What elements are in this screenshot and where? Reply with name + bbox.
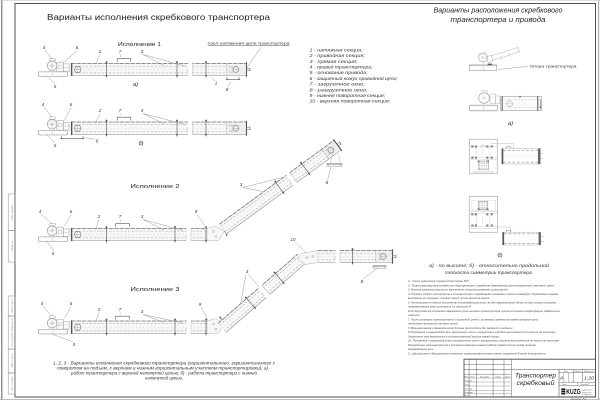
svg-text:6 - защитный кожух приводной: 6 - защитный кожух приводной цепи; (310, 76, 399, 81)
svg-text:KUZG: KUZG (566, 389, 581, 396)
svg-text:Подп.: Подп. (496, 376, 502, 378)
svg-text:3 - прямая секция;: 3 - прямая секция; (310, 59, 359, 64)
svg-text:5 - основание привода;: 5 - основание привода; (310, 70, 369, 75)
svg-text:8: 8 (96, 139, 99, 144)
svg-text:7: 7 (119, 214, 122, 219)
svg-text:10: 10 (291, 237, 296, 242)
svg-text:Перв. примен.: Перв. примен. (11, 204, 14, 220)
svg-text:Исполнение 2: Исполнение 2 (131, 184, 180, 190)
svg-text:Лит.: Лит. (564, 371, 568, 373)
svg-text:Исполнение 3: Исполнение 3 (131, 287, 180, 293)
svg-text:Подп. и дата: Подп. и дата (11, 353, 14, 368)
svg-text:плоскости симметрии транспорте: плоскости симметрии транспортера. (445, 270, 533, 275)
svg-text:Масштаб: Масштаб (584, 371, 594, 373)
svg-text:Варианты расположения скребков: Варианты расположения скребкового (434, 6, 563, 15)
svg-text:Н.контр.: Н.контр. (465, 392, 474, 394)
svg-text:8 - разгрузочное окно;: 8 - разгрузочное окно; (310, 87, 369, 92)
svg-text:Инв. № дубл. Взам.инв.№: Инв. № дубл. Взам.инв.№ (11, 318, 14, 347)
svg-text:8: 8 (226, 87, 229, 92)
svg-text:1:20: 1:20 (584, 376, 595, 381)
svg-text:4: 4 (42, 102, 45, 107)
svg-text:Лист: Лист (470, 376, 475, 378)
svg-text:9 - нижняя поворотная секция;: 9 - нижняя поворотная секция; (310, 93, 387, 98)
svg-text:И: И (560, 376, 563, 381)
svg-text:7: 7 (119, 49, 122, 54)
svg-text:№ докум.: № докум. (480, 375, 490, 378)
svg-text:3: 3 (246, 269, 249, 274)
svg-text:Пров.: Пров. (465, 384, 471, 386)
svg-text:Узел натяжения цепи транспорте: Узел натяжения цепи транспортера (208, 41, 291, 46)
svg-text:8: 8 (326, 180, 329, 185)
svg-text:а) - по высоте; б) - относи: а) - по высоте; б) - относительно продол… (429, 262, 550, 268)
svg-text:а): а) (508, 121, 513, 127)
svg-text:6: 6 (76, 45, 79, 50)
svg-text:3: 3 (141, 214, 144, 219)
svg-text:3: 3 (240, 182, 243, 187)
svg-text:8: 8 (361, 279, 364, 284)
svg-text:б): б) (138, 141, 143, 147)
svg-text:9: 9 (195, 209, 198, 214)
svg-text:11. (Движущиеся и Вращающиеся: 11. (Движущиеся и Вращающиеся элементы т… (408, 351, 546, 355)
svg-text:1: 1 (215, 81, 218, 86)
svg-text:2: 2 (97, 214, 101, 219)
svg-text:1 - натяжная секция;: 1 - натяжная секция; (310, 48, 364, 53)
svg-text:7 - загрузочное окно;: 7 - загрузочное окно; (310, 82, 366, 87)
svg-text:3: 3 (141, 49, 144, 54)
svg-text:3: 3 (141, 108, 144, 113)
svg-text:6: 6 (70, 301, 73, 306)
svg-text:Утв.: Утв. (465, 395, 470, 397)
svg-text:9: 9 (199, 302, 202, 307)
svg-text:4: 4 (39, 209, 42, 214)
svg-text:б): б) (497, 253, 502, 259)
svg-text:6: 6 (70, 209, 73, 214)
svg-text:а): а) (133, 82, 138, 88)
svg-text:Исполнение 1: Исполнение 1 (118, 42, 161, 48)
svg-text:Разраб.: Разраб. (465, 380, 473, 382)
svg-text:2: 2 (97, 307, 101, 312)
svg-text:Инв. № подл.: Инв. № подл. (11, 376, 14, 391)
svg-text:Изм: Изм (464, 376, 469, 378)
svg-text:6.Не допускается сочинение зав: 6.Не допускается сочинение завьюжного ре… (408, 309, 560, 313)
svg-text:7: 7 (119, 108, 122, 113)
svg-text:6: 6 (70, 102, 73, 107)
svg-text:2: 2 (98, 108, 102, 113)
svg-text:4: 4 (41, 301, 44, 306)
svg-text:5: 5 (54, 84, 57, 89)
svg-text:Транспортер: Транспортер (515, 373, 556, 380)
svg-text:Т.контр.: Т.контр. (465, 388, 473, 390)
svg-text:Опора транспортера: Опора транспортера (530, 64, 578, 69)
svg-text:4 - привод транспортера;: 4 - привод транспортера; (310, 65, 374, 70)
svg-text:университет: университет (582, 394, 593, 396)
svg-text:2 - приводная секция;: 2 - приводная секция; (308, 53, 366, 58)
svg-text:транспортера и привода: транспортера и привода (451, 15, 546, 24)
svg-text:7: 7 (119, 307, 122, 312)
svg-text:3: 3 (141, 309, 144, 314)
svg-text:10 - верхняя поворотная секци: 10 - верхняя поворотная секция; (310, 99, 392, 104)
svg-text:натянутой цепью.: натянутой цепью. (145, 375, 183, 381)
svg-text:5: 5 (73, 342, 76, 347)
svg-text:Подп. и дата: Подп. и дата (11, 298, 14, 313)
svg-text:Справ. №: Справ. № (11, 240, 14, 251)
svg-text:Варианты исполнения скребковог: Варианты исполнения скребкового транспор… (47, 12, 270, 22)
svg-text:2: 2 (98, 49, 102, 54)
svg-text:скребковый: скребковый (517, 379, 555, 387)
svg-text:Масса: Масса (575, 371, 582, 373)
svg-text:Дата: Дата (505, 376, 511, 378)
svg-text:5: 5 (52, 251, 55, 256)
svg-text:4: 4 (43, 45, 46, 50)
svg-text:5: 5 (54, 143, 57, 148)
